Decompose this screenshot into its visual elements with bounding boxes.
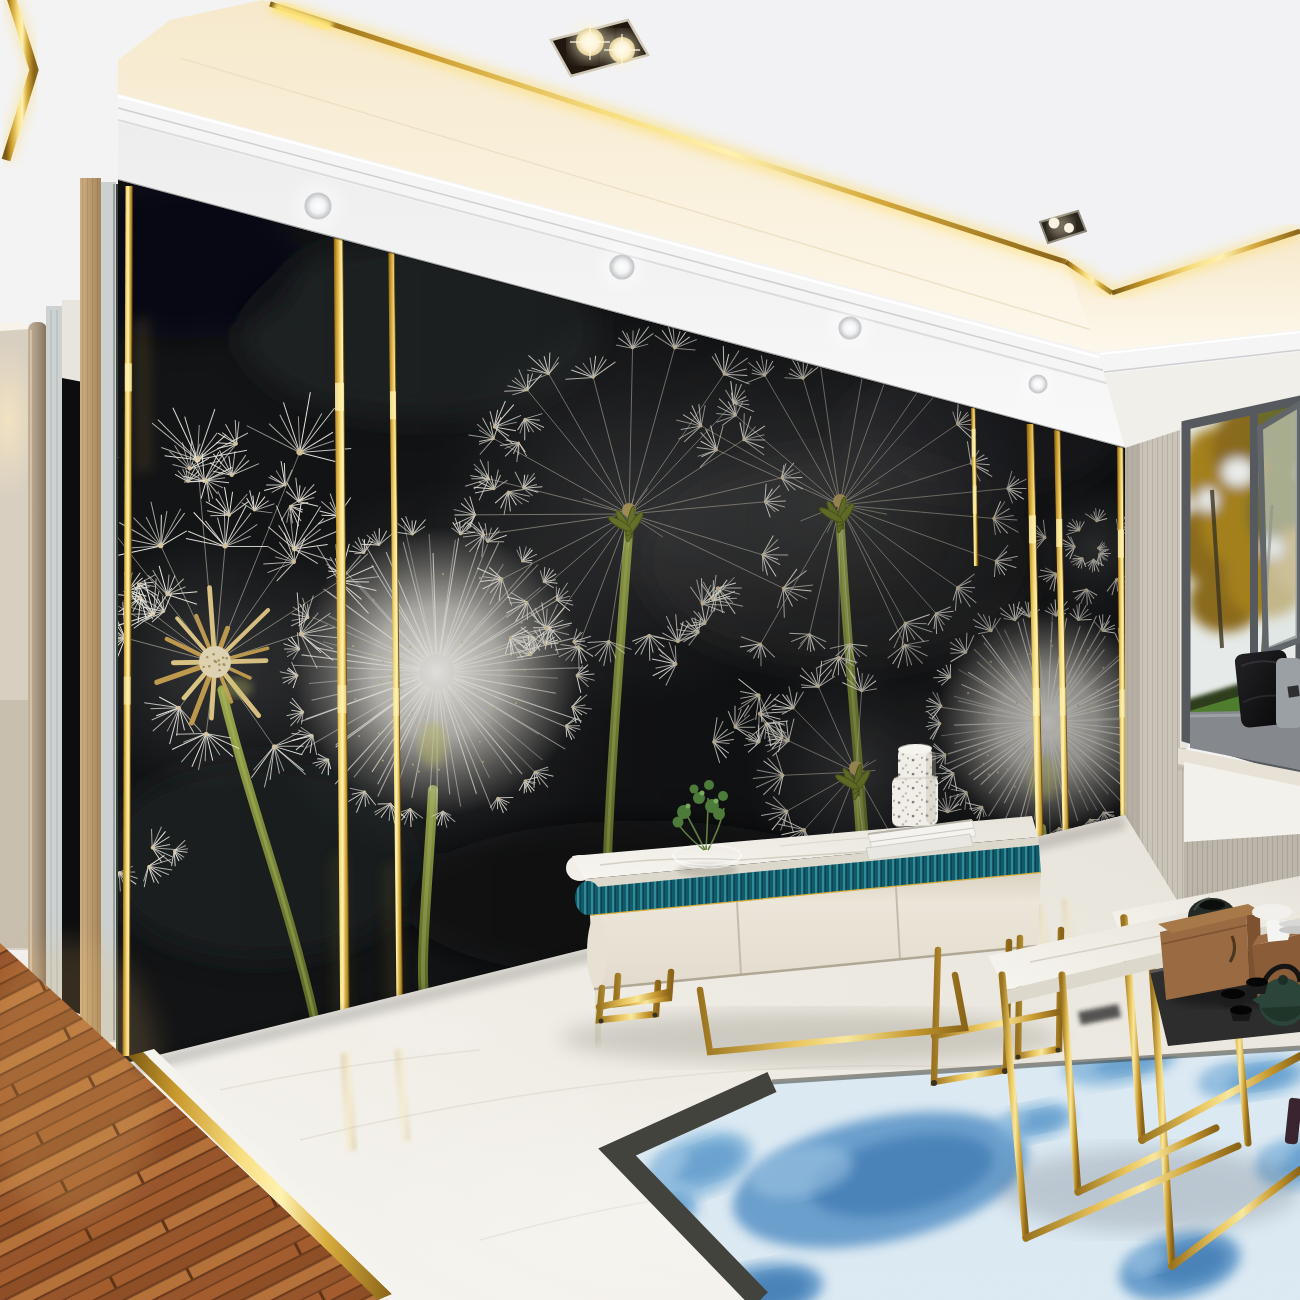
scene-image xyxy=(0,0,1300,1300)
downlight xyxy=(829,307,871,349)
downlight xyxy=(599,244,645,290)
downlight xyxy=(1021,367,1055,401)
white-cloth xyxy=(1252,904,1292,920)
gray-pillow xyxy=(1276,658,1300,728)
doorway-opening xyxy=(62,378,83,1015)
door-lintel xyxy=(62,300,82,380)
downlight xyxy=(293,181,342,230)
console-shadow xyxy=(560,1012,1060,1064)
living-room-render xyxy=(0,0,1300,1300)
terrazzo-jar xyxy=(892,743,938,827)
curtain-panel xyxy=(46,306,62,1012)
